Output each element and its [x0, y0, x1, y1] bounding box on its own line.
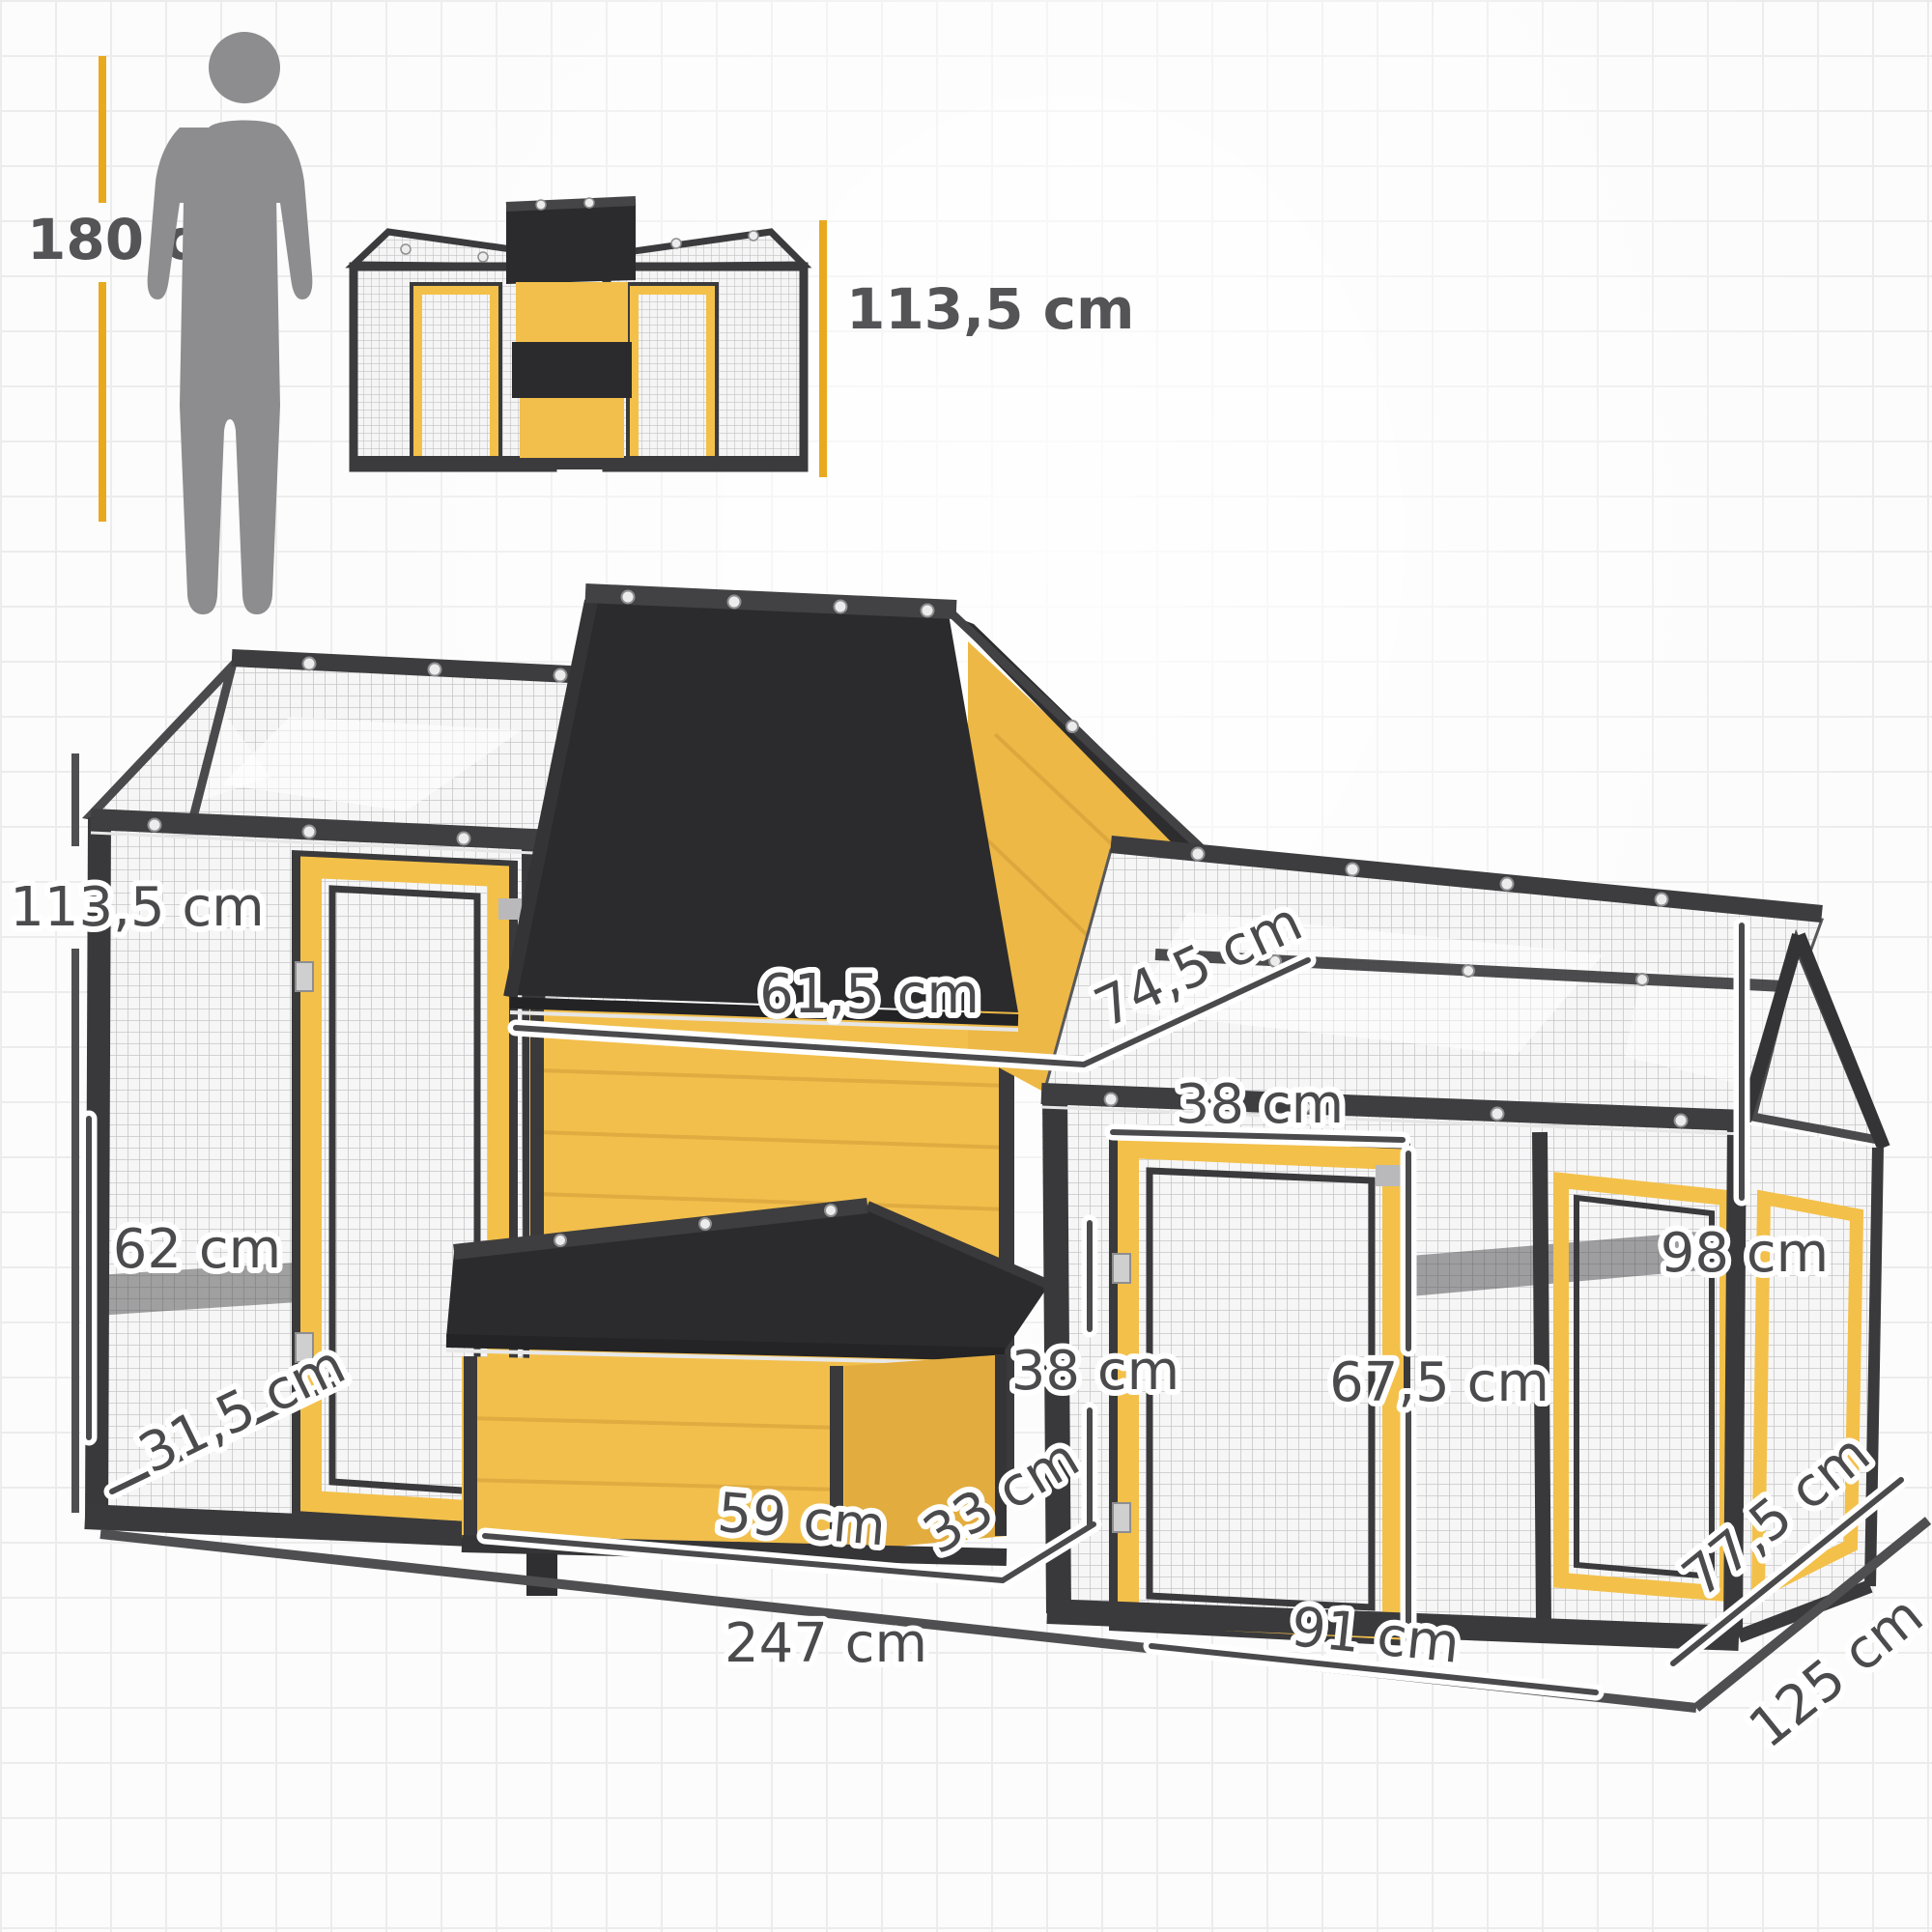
house-roof-front-slope — [510, 599, 1018, 1012]
coop-front-view-thumbnail — [354, 198, 804, 469]
dim-door-height-label: 67,5 cm — [1329, 1351, 1549, 1414]
dim-total-width-label: 247 cm — [724, 1612, 927, 1675]
dim-left-panel-height-label: 62 cm — [113, 1218, 281, 1281]
dim-wall-height-label: 98 cm — [1661, 1222, 1829, 1285]
dim-roof-width-label: 61,5 cm — [759, 963, 980, 1026]
door-hinge — [1113, 1503, 1130, 1532]
door-hinge — [1113, 1254, 1130, 1283]
door-latch — [1376, 1165, 1401, 1186]
human-silhouette-icon — [148, 32, 313, 614]
dim-gable-width-label: 38 cm — [1176, 1073, 1344, 1136]
diagram-page: 180 cm — [0, 0, 1932, 1932]
dim-nest-height-label: 38 cm — [1011, 1340, 1179, 1403]
door-latch — [498, 898, 522, 920]
coop-dimension-diagram: 180 cm — [0, 0, 1932, 1932]
thumbnail-height-label: 113,5 cm — [846, 276, 1134, 342]
thumbnail-roof — [506, 199, 636, 284]
dim-total-height-label: 113,5 cm — [10, 876, 264, 939]
door-hinge — [296, 962, 313, 991]
nest-box-leg — [526, 1553, 557, 1596]
main-isometric-view: 113,5 cm 62 cm 31,5 cm 61,5 cm 74,5 cm 3… — [10, 591, 1932, 1761]
scale-reference-block: 180 cm — [27, 32, 1134, 614]
